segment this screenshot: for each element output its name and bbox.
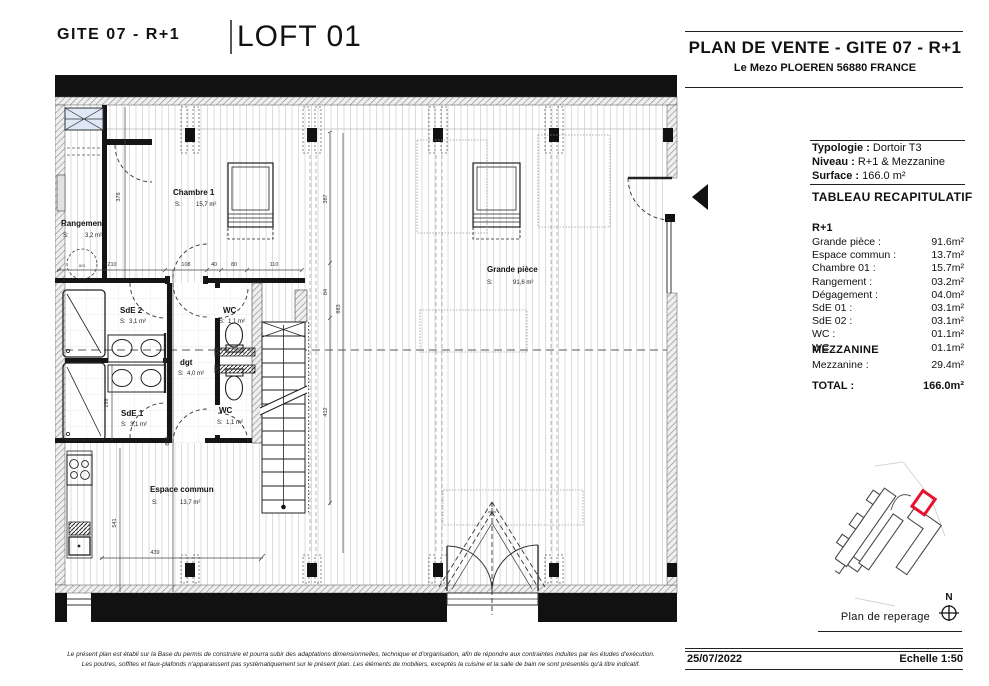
disclaimer-line2: Les poutres, soffites et faux-plafonds n… (45, 660, 677, 670)
svg-text:378: 378 (116, 192, 122, 201)
room-grande-piece: Grande pièce (487, 265, 538, 274)
divider (685, 31, 963, 32)
svg-text:679: 679 (165, 436, 171, 445)
table-row: Rangement :03.2m² (812, 276, 964, 289)
staircase (260, 322, 309, 513)
table-row: Mezzanine :29.4m² (812, 359, 964, 372)
right-sidelight (667, 220, 671, 293)
section-r1-heading: R+1 (812, 222, 833, 234)
door-post (665, 214, 675, 222)
svg-text:S:: S: (63, 233, 69, 239)
disclaimer-line1: Le présent plan est établi sur la Base d… (45, 650, 677, 660)
svg-text:S:: S: (152, 500, 158, 506)
svg-text:883: 883 (336, 304, 342, 313)
table-row: SdE 02 :03.1m² (812, 315, 964, 328)
plan-address: Le Mezo PLOEREN 56880 FRANCE (685, 62, 965, 74)
svg-text:199: 199 (104, 398, 110, 407)
svg-text:S:: S: (121, 422, 127, 428)
svg-text:S:: S: (217, 420, 223, 426)
svg-text:S:: S: (120, 319, 126, 325)
room-wc-top: WC (223, 306, 237, 315)
room-sde2: SdE 2 (120, 306, 143, 315)
svg-text:3,2 m²: 3,2 m² (85, 233, 102, 239)
stair-wall (252, 283, 262, 443)
svg-text:1,1 m²: 1,1 m² (226, 420, 243, 426)
dish-rack (69, 522, 90, 535)
divider (685, 669, 963, 670)
floor-plan: 210 108 40 80 110 378 387 84 412 883 199… (55, 75, 685, 645)
page-title: LOFT 01 (230, 20, 362, 54)
total-row: TOTAL : 166.0m² (812, 380, 964, 392)
svg-text:80: 80 (231, 262, 237, 268)
mezzanine-table: Mezzanine :29.4m² (812, 359, 964, 372)
svg-text:13,7 m²: 13,7 m² (180, 500, 200, 506)
table-row: Chambre 01 :15.7m² (812, 262, 964, 275)
niveau-label: Niveau : (812, 156, 855, 168)
floor-hatching (65, 105, 667, 585)
svg-text:S:: S: (219, 319, 225, 325)
svg-text:3,1 m²: 3,1 m² (130, 422, 147, 428)
buildings (835, 467, 952, 606)
minimap-caption: Plan de reperage (828, 611, 943, 623)
room-wc-bottom: WC (219, 406, 233, 415)
plan-title: PLAN DE VENTE - GITE 07 - R+1 (685, 38, 965, 58)
typologie-value: Dortoir T3 (873, 142, 922, 154)
utility-box (57, 175, 65, 211)
svg-text:S:: S: (178, 371, 184, 377)
unit-info: Typologie : Dortoir T3 Niveau : R+1 & Me… (812, 141, 965, 183)
svg-text:91,6 m²: 91,6 m² (513, 280, 533, 286)
svg-text:4,0 m²: 4,0 m² (187, 371, 204, 377)
svg-text:1,1 m²: 1,1 m² (228, 319, 245, 325)
access-hatch-label: acs (79, 263, 86, 268)
table-row: SdE 01 :03.1m² (812, 302, 964, 315)
divider (685, 651, 963, 652)
room-chambre1: Chambre 1 (173, 188, 215, 197)
fixed-window (65, 108, 103, 130)
entry-marker-icon (692, 184, 708, 210)
table-row: Espace commun :13.7m² (812, 249, 964, 262)
total-label: TOTAL : (812, 380, 854, 392)
kitchen-window (67, 599, 91, 605)
svg-text:541: 541 (112, 518, 118, 527)
room-rangement: Rangement (61, 219, 105, 228)
surface-value: 166.0 m² (862, 170, 905, 182)
area-table: Grande pièce :91.6m² Espace commun :13.7… (812, 236, 964, 355)
svg-text:412: 412 (323, 407, 329, 416)
divider (810, 184, 965, 185)
table-row: Dégagement :04.0m² (812, 289, 964, 302)
table-row: Grande pièce :91.6m² (812, 236, 964, 249)
divider (685, 648, 963, 649)
location-minimap: N (835, 458, 967, 630)
page: GITE 07 - R+1 LOFT 01 (0, 0, 989, 686)
table-heading: TABLEAU RECAPITULATIF (812, 190, 973, 204)
svg-text:110: 110 (270, 262, 279, 268)
north-label: N (945, 592, 952, 603)
svg-text:84: 84 (323, 289, 329, 295)
section-mezzanine-heading: MEZZANINE (812, 344, 879, 356)
svg-text:15,7 m²: 15,7 m² (196, 202, 216, 208)
room-dgt: dgt (180, 358, 193, 367)
svg-text:S:: S: (175, 202, 181, 208)
room-espace-commun: Espace commun (150, 485, 214, 494)
divider (818, 631, 962, 632)
svg-text:387: 387 (323, 194, 329, 203)
landing-wall (295, 290, 307, 322)
surface-label: Surface : (812, 170, 859, 182)
svg-text:S:: S: (487, 280, 493, 286)
disclaimer: Le présent plan est établi sur la Base d… (45, 650, 677, 670)
divider (685, 87, 963, 88)
svg-text:108: 108 (181, 262, 190, 268)
typologie-label: Typologie : (812, 142, 870, 154)
document-ref: GITE 07 - R+1 (57, 26, 180, 44)
niveau-value: R+1 & Mezzanine (858, 156, 945, 168)
scale: Echelle 1:50 (685, 653, 963, 665)
svg-text:3,1 m²: 3,1 m² (129, 319, 146, 325)
room-sde1: SdE 1 (121, 409, 144, 418)
svg-text:439: 439 (150, 550, 159, 556)
total-value: 166.0m² (923, 380, 964, 392)
svg-text:210: 210 (107, 262, 116, 268)
svg-text:40: 40 (211, 262, 217, 268)
table-row: WC :01.1m² (812, 328, 964, 341)
